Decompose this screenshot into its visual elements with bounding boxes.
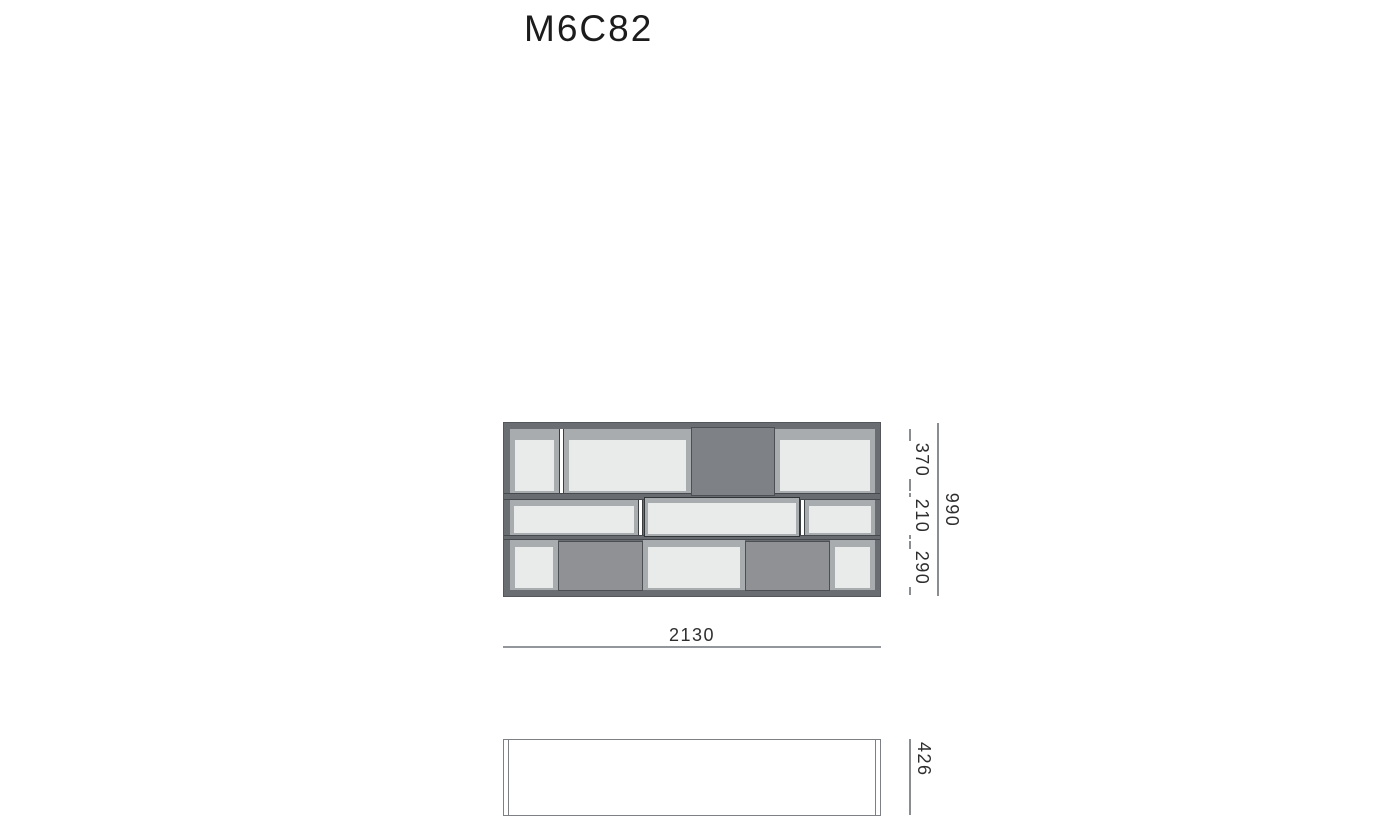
drawer-interior (648, 503, 796, 534)
dim-line (909, 587, 911, 595)
open-compartment (775, 429, 875, 493)
side-panel-line (508, 740, 509, 815)
compartment-interior (648, 547, 740, 588)
open-compartment (830, 540, 875, 590)
dim-label-2130: 2130 (503, 625, 881, 646)
dim-label-990: 990 (941, 492, 962, 527)
open-compartment (805, 500, 875, 535)
dim-segment-top: 370 (903, 429, 931, 491)
model-code-title: M6C82 (524, 8, 653, 50)
compartment-interior (780, 440, 870, 491)
vertical-divider (638, 500, 643, 535)
compartment-interior (515, 547, 553, 588)
dim-line (937, 423, 939, 596)
compartment-interior (835, 547, 870, 588)
door-panel (745, 541, 830, 591)
open-compartment (510, 540, 558, 590)
dim-line (909, 535, 911, 539)
open-compartment (643, 540, 745, 590)
side-panel-line (875, 740, 876, 815)
open-compartment (564, 429, 691, 493)
dim-segment-middle: 210 (903, 493, 931, 539)
dim-line-width (503, 646, 881, 648)
dim-depth: 426 (908, 739, 936, 815)
dim-line (909, 541, 911, 549)
dim-total-height: 990 (937, 423, 965, 596)
compartment-interior (514, 506, 634, 533)
compartment-interior (809, 506, 871, 533)
dim-label-290: 290 (911, 551, 932, 586)
dim-label-370: 370 (911, 443, 932, 478)
compartment-interior (515, 440, 554, 491)
dim-segment-bottom: 290 (903, 541, 931, 595)
dim-line (909, 479, 911, 491)
open-compartment (510, 429, 559, 493)
drawer-panel (644, 497, 800, 537)
dim-label-426: 426 (913, 742, 934, 777)
dim-line (909, 429, 911, 441)
door-panel (691, 427, 775, 496)
dim-line (909, 493, 911, 497)
top-plan-view (503, 739, 881, 816)
open-compartment (510, 500, 638, 535)
compartment-interior (569, 440, 686, 491)
door-panel (558, 541, 643, 591)
dim-line (909, 739, 911, 815)
front-elevation-view (503, 422, 881, 597)
drawing-sheet: M6C82 370 210 290 (0, 0, 1400, 840)
dim-label-210: 210 (911, 499, 932, 534)
